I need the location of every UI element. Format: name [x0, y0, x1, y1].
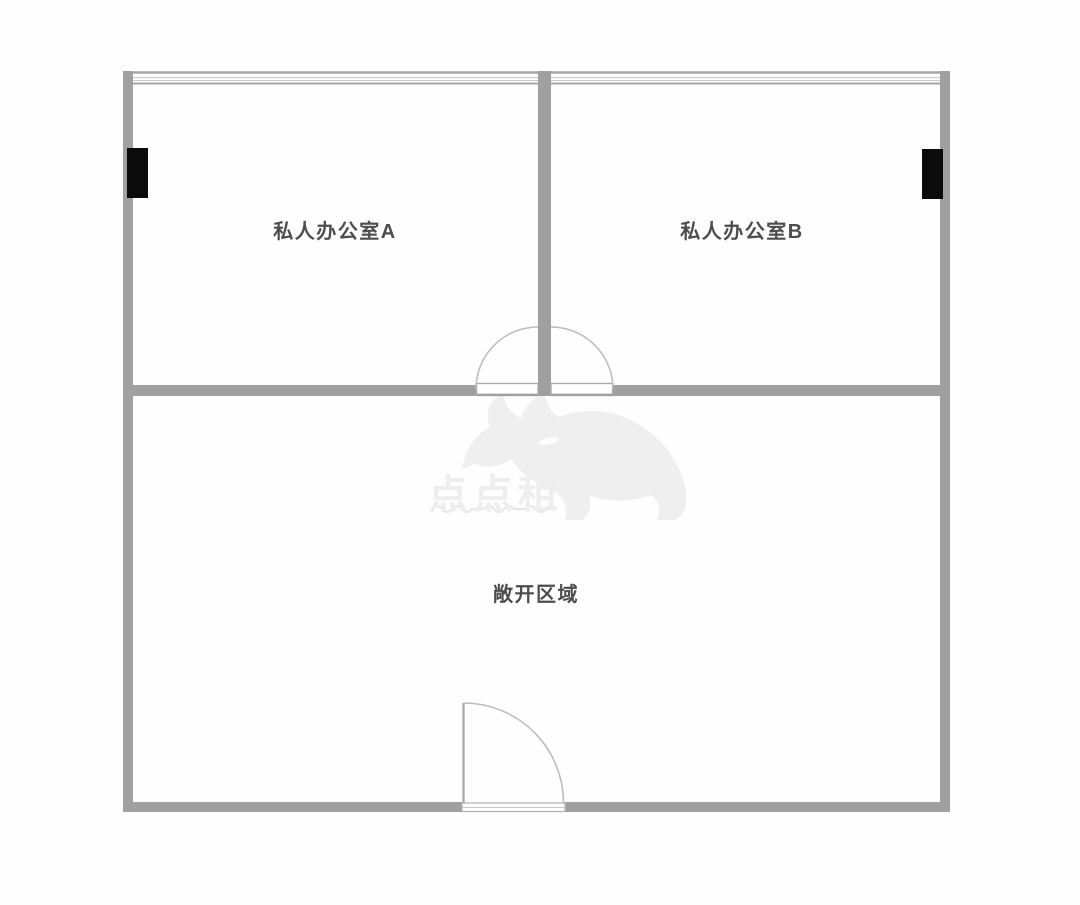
- office-a-label: 私人办公室A: [215, 215, 455, 244]
- office-b-door-swing-arc: [551, 327, 613, 389]
- office-a-door-swing-arc: [476, 327, 538, 389]
- wall-center-divider: [538, 71, 551, 396]
- wall-middle-right-segment: [613, 385, 950, 396]
- open-area-label: 敞开区域: [416, 578, 656, 607]
- wall-bottom-right-segment: [565, 802, 950, 812]
- floor-plan-canvas: 私人办公室A 私人办公室B 敞开区域 点点租: [0, 0, 1080, 905]
- open-area-entry-door: [462, 703, 565, 812]
- left-column-marker: [127, 148, 148, 198]
- office-b-label: 私人办公室B: [622, 215, 862, 244]
- office-b-door: [551, 327, 613, 396]
- entry-door-swing-arc: [464, 703, 564, 803]
- window-wall-top: [123, 73, 950, 84]
- office-a-door: [476, 327, 538, 396]
- wall-bottom-left-segment: [123, 802, 462, 812]
- right-column-marker: [922, 149, 943, 199]
- floor-plan-drawing: [0, 0, 1080, 905]
- wall-middle-left-segment: [123, 385, 476, 396]
- watermark-brand-text: 点点租: [428, 462, 563, 520]
